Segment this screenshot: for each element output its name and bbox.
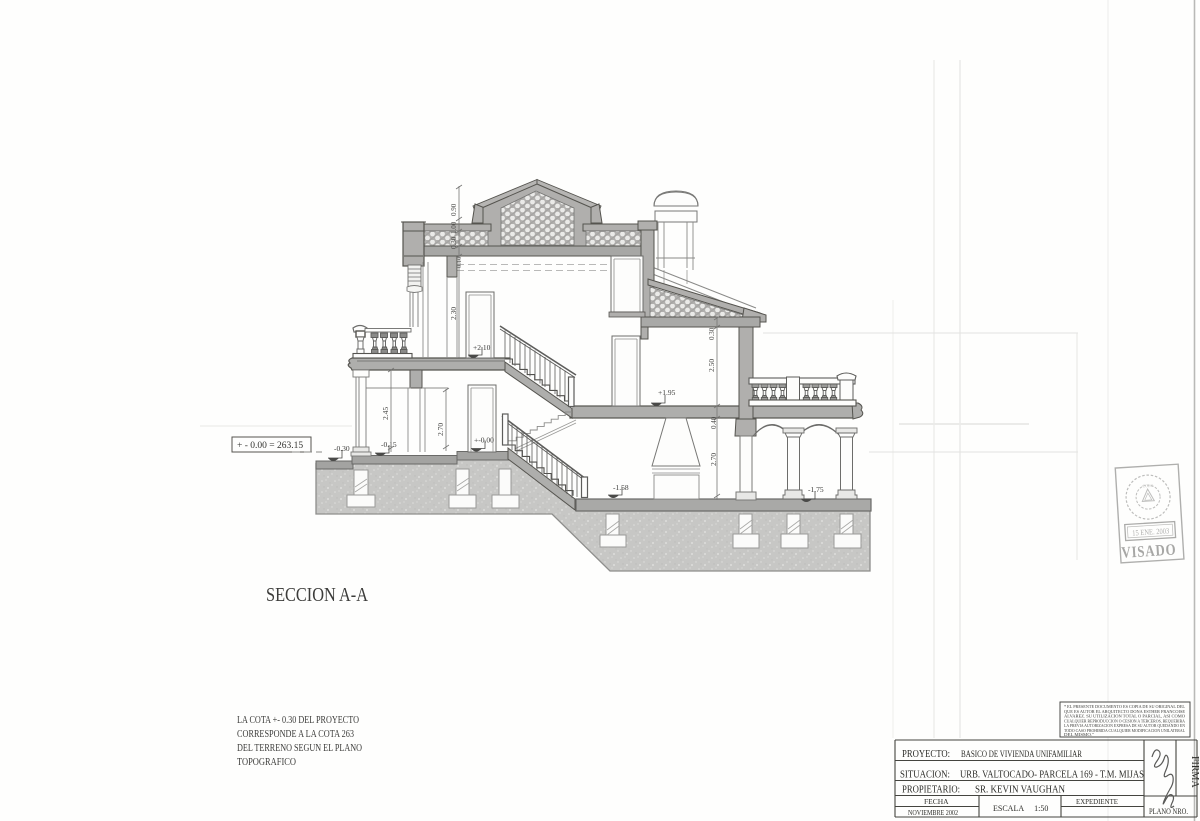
svg-text:2.50: 2.50: [707, 359, 716, 372]
svg-text:0.40: 0.40: [710, 416, 718, 429]
svg-text:2.70: 2.70: [436, 423, 445, 436]
svg-text:FECHA: FECHA: [924, 797, 949, 806]
svg-text:URB. VALTOCADO- PARCELA 169 -: URB. VALTOCADO- PARCELA 169 - T.M. MIJAS: [960, 770, 1144, 781]
svg-text:+-0.00: +-0.00: [474, 436, 494, 445]
svg-text:2.45: 2.45: [381, 407, 390, 420]
svg-text:+2.10: +2.10: [473, 343, 491, 352]
svg-text:+1.95: +1.95: [658, 388, 676, 397]
svg-text:2.30: 2.30: [449, 307, 458, 320]
svg-text:EXPEDIENTE: EXPEDIENTE: [1076, 797, 1118, 806]
svg-text:SR. KEVIN VAUGHAN: SR. KEVIN VAUGHAN: [975, 785, 1065, 796]
svg-text:+ - 0.00 = 263.15: + - 0.00 = 263.15: [237, 441, 303, 451]
svg-text:BASICO DE VIVIENDA UNIFAMILIAR: BASICO DE VIVIENDA UNIFAMILIAR: [961, 750, 1082, 760]
svg-text:PLANO NRO.: PLANO NRO.: [1149, 807, 1188, 816]
svg-text:VISADO: VISADO: [1121, 541, 1177, 561]
svg-text:SECCION A-A: SECCION A-A: [266, 584, 368, 606]
svg-text:NOVIEMBRE 2002: NOVIEMBRE 2002: [908, 808, 958, 817]
svg-text:-1.75: -1.75: [808, 485, 824, 494]
svg-text:-0.30: -0.30: [334, 444, 350, 453]
svg-text:0.30: 0.30: [450, 236, 458, 249]
svg-text:COLG: COLG: [1142, 483, 1153, 489]
svg-text:PROYECTO:: PROYECTO:: [902, 749, 950, 760]
svg-text:LA COTA +- 0.30 DEL PROYECTO: LA COTA +- 0.30 DEL PROYECTO: [237, 715, 359, 726]
svg-text:-1.58: -1.58: [613, 483, 629, 492]
svg-text:DEL MISMO.": DEL MISMO.": [1064, 732, 1094, 737]
svg-text:2.70: 2.70: [709, 453, 718, 466]
svg-text:0.30: 0.30: [708, 327, 716, 340]
svg-text:PROPIETARIO:: PROPIETARIO:: [902, 785, 960, 796]
svg-text:DEL TERRENO SEGUN EL PLANO: DEL TERRENO SEGUN EL PLANO: [237, 743, 362, 754]
svg-text:0.90: 0.90: [450, 203, 458, 216]
svg-text:SITUACION:: SITUACION:: [900, 770, 950, 781]
svg-text:-0.15: -0.15: [381, 440, 397, 449]
svg-text:FIRMA: FIRMA: [1189, 756, 1200, 788]
svg-text:1.00: 1.00: [450, 221, 458, 234]
svg-text:ESCALA 1:50: ESCALA 1:50: [993, 804, 1048, 813]
svg-text:TOPOGRAFICO: TOPOGRAFICO: [237, 757, 296, 768]
svg-text:0.10: 0.10: [456, 257, 463, 268]
svg-text:CORRESPONDE A LA COTA 263: CORRESPONDE A LA COTA 263: [237, 729, 354, 740]
